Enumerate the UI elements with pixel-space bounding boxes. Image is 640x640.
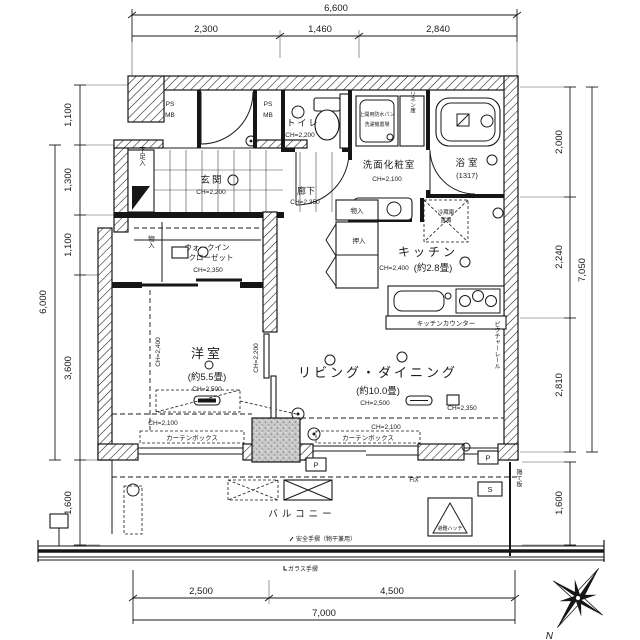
oshiire-label: 押入 xyxy=(353,236,367,245)
dim-left-balcony: 1,600 xyxy=(63,491,74,515)
fix-window-label: FIX xyxy=(409,478,418,484)
western-ch: CH=2,500 xyxy=(192,386,222,393)
partition-label: 隔て板 xyxy=(515,468,522,488)
fridge-label-1: 冷蔵庫 xyxy=(438,208,455,216)
powder-label: 洗面化粧室 xyxy=(363,159,416,171)
hallway-ch: CH=2,350 xyxy=(290,199,320,206)
wall-left-upper xyxy=(114,146,128,232)
western-ch-side: CH=2,400 xyxy=(155,337,162,367)
washer-label-2: 洗濯機置場 xyxy=(364,121,389,128)
walk-in-closet: 物入 ウォークイン クローゼット CH=2,350 xyxy=(112,212,284,332)
linen-label: リネン庫 xyxy=(409,91,416,114)
equipment-pads xyxy=(228,480,332,500)
kitchen-size: (約2.8畳) xyxy=(414,262,453,274)
kitchen-counter: キッチンカウンター xyxy=(386,286,506,329)
toilet-ch: CH=2,200 xyxy=(285,132,315,139)
wic-ch: CH=2,350 xyxy=(193,267,223,274)
ps-label-right: PS xyxy=(264,101,273,108)
wall-bottom-1 xyxy=(98,444,138,460)
dim-right-overall: 7,050 xyxy=(577,258,588,282)
wall-left-lower xyxy=(98,228,112,460)
balcony-label: バルコニー xyxy=(268,509,335,520)
dim-left-seg1: 1,100 xyxy=(63,103,74,127)
dimension-right: 2,000 2,240 2,810 1,600 7,050 xyxy=(520,87,598,545)
fridge-space: 冷蔵庫 置場 xyxy=(424,200,468,242)
hatch-label: 避難ハッチ xyxy=(437,525,462,532)
bath-label: 浴室 xyxy=(455,157,480,169)
bathtub xyxy=(436,98,500,146)
fridge-label-2: 置場 xyxy=(440,216,452,224)
western-label: 洋室 xyxy=(191,346,223,361)
powder-ch: CH=2,100 xyxy=(372,176,402,183)
ps-label-left: PS xyxy=(166,101,175,108)
toilet-door xyxy=(296,152,349,205)
western-ch-low: CH=2,100 xyxy=(148,420,178,427)
p-box-left-label: P xyxy=(313,461,318,470)
mb-label-left: MB xyxy=(165,112,175,119)
downlight-icon xyxy=(460,257,470,267)
storage-closets: 物入 押入 xyxy=(326,200,378,288)
downlight-icon xyxy=(228,175,238,185)
living-ch: CH=2,500 xyxy=(360,400,390,407)
kitchen-ch: CH=2,400 xyxy=(379,265,409,272)
floor-plan-page: 6,600 2,300 1,460 2,840 1,100 1,300 1,10… xyxy=(0,0,640,640)
entrance-ch: CH=2,200 xyxy=(196,189,226,196)
p-box-right-label: P xyxy=(485,454,490,463)
utility-box xyxy=(50,514,68,528)
railing: 安全手摺（物干兼用） ガラス手摺 xyxy=(38,535,604,573)
column xyxy=(252,418,300,462)
dim-left-seg2: 1,300 xyxy=(63,168,74,192)
dim-right-balcony: 1,600 xyxy=(554,491,565,515)
dim-right-seg3: 2,810 xyxy=(554,373,565,397)
compass-star xyxy=(533,551,623,640)
dim-right-seg2: 2,240 xyxy=(554,245,565,269)
floor-plan-drawing: 6,600 2,300 1,460 2,840 1,100 1,300 1,10… xyxy=(0,0,640,640)
wall-bottom-3 xyxy=(418,444,464,460)
dimension-bottom: 2,500 4,500 7,000 xyxy=(129,570,519,624)
balcony: バルコニー 避難ハッチ S P P FIX 隔て板 安全手摺（物干兼用） ガラス… xyxy=(38,443,604,573)
living-ch-wall: CH=2,200 xyxy=(253,343,260,373)
entrance-label: 玄関 xyxy=(200,174,223,186)
curtain-box-label-living: カーテンボックス xyxy=(342,434,394,442)
living-label: リビング・ダイニング xyxy=(298,365,458,380)
picture-rail-label: ピクチャーレール xyxy=(493,321,500,369)
folding-door xyxy=(326,224,336,286)
dim-top-seg1: 2,300 xyxy=(194,24,218,35)
dim-bottom-total: 7,000 xyxy=(312,608,336,619)
hallway-label: 廊下 xyxy=(297,185,315,196)
vent-icon xyxy=(487,155,497,165)
dim-bottom-seg2: 4,500 xyxy=(380,586,404,597)
divider-wall xyxy=(263,212,277,332)
counter-label: キッチンカウンター xyxy=(417,319,476,328)
compass-north-label: N xyxy=(546,631,554,640)
wall-shaft-block xyxy=(128,76,164,122)
kitchen-label: キッチン xyxy=(398,245,458,259)
glass-rail-label: ガラス手摺 xyxy=(288,565,318,573)
wall-top xyxy=(163,76,518,90)
evacuation-hatch: 避難ハッチ xyxy=(428,498,472,536)
curtain-box-label-west: カーテンボックス xyxy=(166,434,218,442)
bathroom: 浴室 (1317) xyxy=(426,90,504,198)
entry-door xyxy=(201,92,256,146)
dim-top-total: 6,600 xyxy=(324,3,348,14)
drain-pipe xyxy=(124,484,142,534)
dim-right-seg1: 2,000 xyxy=(554,130,565,154)
living-ch-side: CH=2,350 xyxy=(447,405,477,412)
compass-rose: N xyxy=(522,551,623,640)
shoe-cabinet: 下足入 xyxy=(128,146,154,212)
partition-pole: 隔て板 xyxy=(510,462,522,556)
wall-right xyxy=(504,76,518,460)
wall-bottom-4 xyxy=(498,444,518,460)
living-ch-low: CH=2,100 xyxy=(371,424,401,431)
western-size: (約5.5畳) xyxy=(188,371,227,383)
bath-size: (1317) xyxy=(456,171,478,180)
downlight-icon xyxy=(493,208,503,218)
dim-left-seg3: 1,100 xyxy=(63,233,74,257)
living-size: (約10.0畳) xyxy=(356,385,400,397)
dim-top-seg3: 2,840 xyxy=(426,24,450,35)
safety-rail-label: 安全手摺（物干兼用） xyxy=(296,535,356,543)
wic-storage-label: 物入 xyxy=(147,234,155,249)
wic-label-2: クローゼット xyxy=(189,252,234,262)
toilet-label: トイレ xyxy=(286,118,319,128)
s-box-label: S xyxy=(487,485,492,494)
linen-closet: リネン庫 xyxy=(400,91,424,146)
dim-top-seg2: 1,460 xyxy=(308,24,332,35)
wic-label-1: ウォークイン xyxy=(185,243,230,252)
washer-pan: 上開用防水パン 洗濯機置場 xyxy=(356,96,398,146)
dim-bottom-seg1: 2,500 xyxy=(189,586,213,597)
dimension-top: 6,600 2,300 1,460 2,840 xyxy=(128,3,521,76)
washer-label-1: 上開用防水パン xyxy=(359,111,394,118)
dim-left-overall: 6,000 xyxy=(38,290,49,314)
storage-label: 物入 xyxy=(351,206,365,215)
mb-label-right: MB xyxy=(263,112,273,119)
dim-left-seg4: 3,600 xyxy=(63,356,74,380)
